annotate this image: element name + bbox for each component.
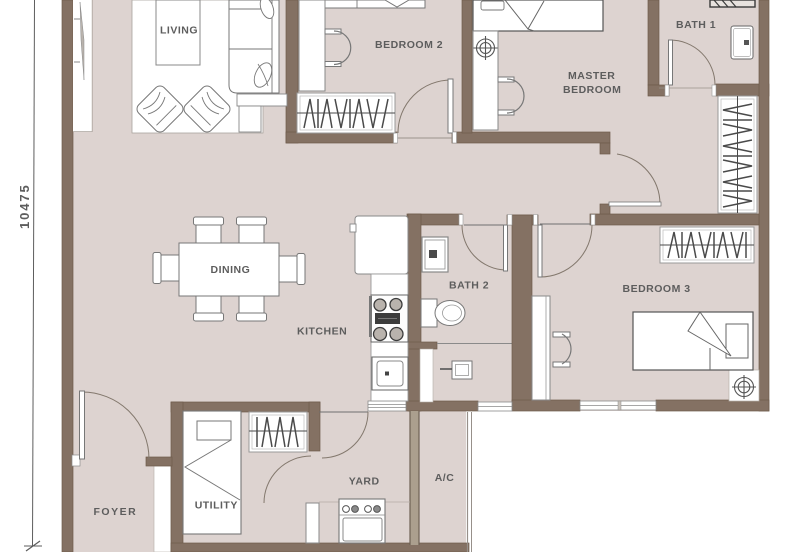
svg-text:DINING: DINING bbox=[211, 264, 251, 276]
svg-text:BEDROOM: BEDROOM bbox=[563, 84, 621, 96]
svg-text:BATH 1: BATH 1 bbox=[676, 19, 716, 31]
svg-text:UTILITY: UTILITY bbox=[195, 500, 238, 512]
svg-text:LIVING: LIVING bbox=[160, 24, 198, 36]
svg-text:MASTER: MASTER bbox=[568, 70, 615, 82]
svg-text:KITCHEN: KITCHEN bbox=[297, 326, 347, 338]
svg-text:BATH 2: BATH 2 bbox=[449, 279, 489, 291]
svg-text:FOYER: FOYER bbox=[94, 506, 138, 518]
svg-text:10475: 10475 bbox=[17, 183, 32, 229]
svg-text:BEDROOM 2: BEDROOM 2 bbox=[375, 39, 443, 51]
svg-text:BEDROOM 3: BEDROOM 3 bbox=[623, 283, 691, 295]
svg-text:A/C: A/C bbox=[435, 472, 455, 484]
svg-text:YARD: YARD bbox=[349, 476, 380, 488]
